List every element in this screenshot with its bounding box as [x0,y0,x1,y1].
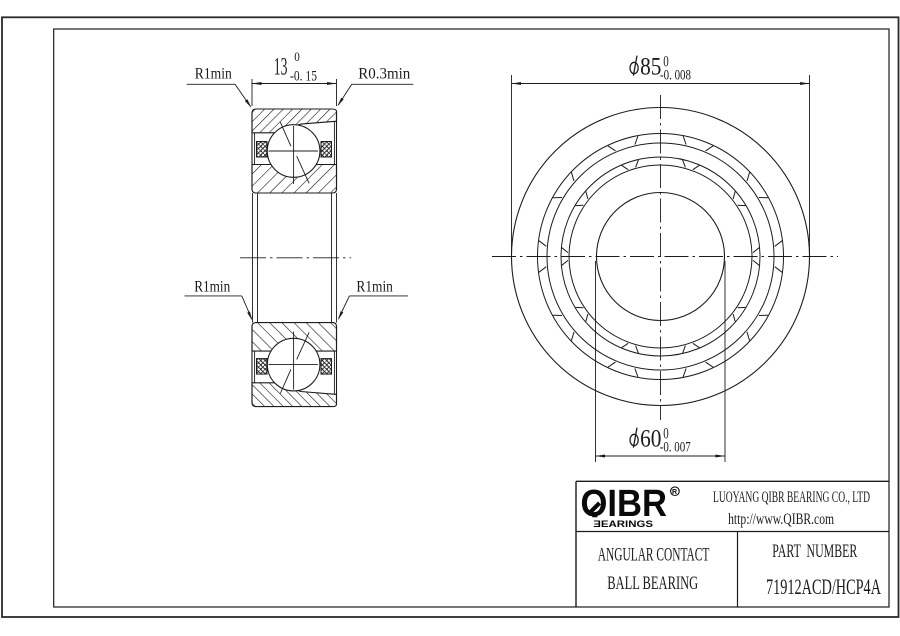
svg-text:60: 60 [640,426,661,453]
svg-text:ƎEARINGS: ƎEARINGS [593,519,653,529]
svg-text:-0. 008: -0. 008 [660,68,691,84]
svg-text:R: R [672,489,677,496]
svg-text:BALL BEARING: BALL BEARING [607,573,698,594]
svg-text:R1min: R1min [356,279,393,296]
svg-text:-0. 15: -0. 15 [290,68,317,84]
svg-text:http://www.QIBR.com: http://www.QIBR.com [728,511,834,528]
svg-text:85: 85 [640,54,661,81]
svg-text:R1min: R1min [194,279,230,296]
svg-text:PART NUMBER: PART NUMBER [772,541,857,562]
svg-text:0: 0 [294,49,300,64]
svg-text:LUOYANG QIBR BEARING CO., LTD: LUOYANG QIBR BEARING CO., LTD [713,489,870,506]
svg-text:R0.3min: R0.3min [358,65,410,82]
svg-text:ANGULAR CONTACT: ANGULAR CONTACT [598,545,710,566]
svg-text:13: 13 [274,54,288,81]
svg-text:R1min: R1min [195,65,232,82]
svg-text:71912ACD/HCP4A: 71912ACD/HCP4A [766,574,881,599]
svg-text:-0. 007: -0. 007 [660,439,691,455]
